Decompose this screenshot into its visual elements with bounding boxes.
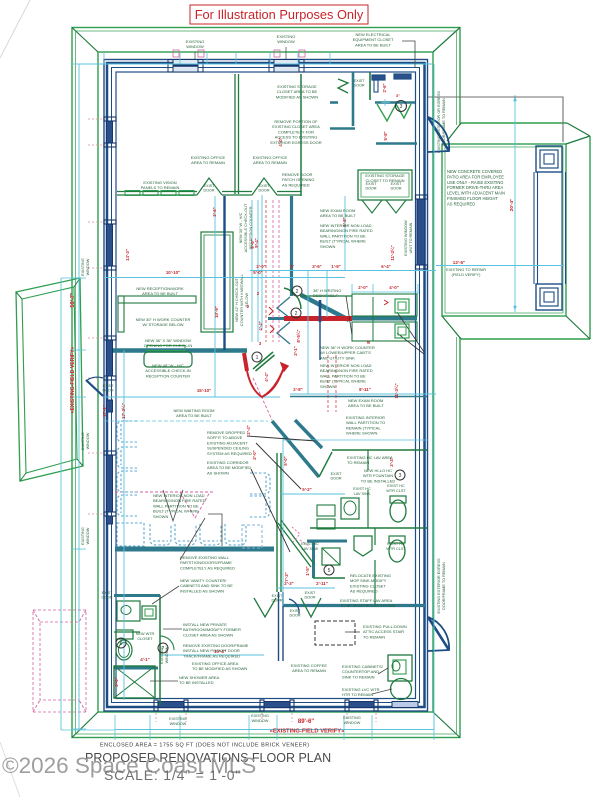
svg-text:5': 5'	[290, 264, 294, 269]
svg-text:2'-11": 2'-11"	[316, 581, 328, 586]
svg-text:LEVEL WITH ADJACENT MAIN: LEVEL WITH ADJACENT MAIN	[447, 191, 505, 196]
svg-text:7'-3": 7'-3"	[284, 572, 289, 581]
svg-text:5'-0": 5'-0"	[283, 456, 288, 465]
svg-text:7: 7	[162, 646, 165, 652]
svg-text:5'-0": 5'-0"	[253, 270, 262, 275]
svg-text:WINDOW: WINDOW	[86, 527, 90, 544]
svg-text:WINDOW: WINDOW	[86, 432, 90, 449]
svg-text:8': 8'	[366, 340, 371, 344]
svg-text:AS REQUIRED: AS REQUIRED	[350, 589, 378, 594]
svg-text:AREA TO BE BUILT: AREA TO BE BUILT	[320, 213, 356, 218]
svg-text:11'-3¼": 11'-3¼"	[394, 383, 399, 398]
svg-text:EXIST: EXIST	[305, 591, 316, 595]
svg-text:PATIO AREA FOR EMPLOYEE: PATIO AREA FOR EMPLOYEE	[447, 174, 504, 179]
svg-text:EXISTING: EXISTING	[81, 258, 85, 276]
svg-text:2'-0": 2'-0"	[358, 285, 367, 290]
svg-text:4'-4": 4'-4"	[258, 321, 263, 330]
svg-text:8'-11": 8'-11"	[359, 387, 371, 392]
svg-text:12'-5": 12'-5"	[453, 260, 465, 265]
svg-text:10'-9": 10'-9"	[214, 306, 219, 318]
svg-text:3'-6": 3'-6"	[312, 264, 321, 269]
svg-text:AS REQUIRED: AS REQUIRED	[447, 201, 475, 206]
svg-text:AREA TO REMAIN: AREA TO REMAIN	[253, 160, 287, 165]
svg-text:5: 5	[328, 568, 331, 574]
svg-text:WTR CLST: WTR CLST	[386, 547, 406, 551]
svg-text:WINDOW: WINDOW	[277, 39, 295, 44]
svg-text:WINDOW: WINDOW	[252, 719, 269, 723]
svg-text:11'-3¼": 11'-3¼"	[390, 245, 395, 260]
svg-text:3: 3	[400, 104, 403, 110]
svg-text:DOOR: DOOR	[101, 596, 112, 600]
svg-text:TO REMAIN: TO REMAIN	[363, 634, 385, 639]
svg-text:15'-10": 15'-10"	[197, 388, 211, 393]
svg-text:89'-6": 89'-6"	[298, 719, 314, 725]
svg-text:20'-4": 20'-4"	[509, 199, 514, 211]
svg-text:DOOR/FRAME TO REMAIN: DOOR/FRAME TO REMAIN	[442, 98, 446, 146]
svg-text:AND UTILITY SINK: AND UTILITY SINK	[320, 355, 355, 360]
svg-text:3'-0": 3'-0"	[256, 264, 265, 269]
svg-text:NEW CONCRETE COVERED: NEW CONCRETE COVERED	[447, 169, 502, 174]
svg-text:2'-6": 2'-6"	[382, 83, 387, 92]
svg-text:DESK/SHELF: DESK/SHELF	[313, 293, 338, 298]
svg-text:8'-5¼": 8'-5¼"	[296, 329, 301, 342]
svg-text:CLOSET: CLOSET	[137, 637, 153, 641]
svg-text:SCALE: 1/4" = 1'-0": SCALE: 1/4" = 1'-0"	[104, 767, 241, 783]
svg-text:3: 3	[399, 473, 402, 479]
svg-text:DOOR: DOOR	[102, 389, 113, 393]
svg-text:FORMER DRIVE-THRU AREA: FORMER DRIVE-THRU AREA	[447, 185, 503, 190]
svg-text:«EXISTING-FIELD VERIFY»: «EXISTING-FIELD VERIFY»	[70, 346, 76, 413]
svg-text:DOOR: DOOR	[353, 84, 364, 88]
svg-text:«EXISTING-FIELD VERIFY»: «EXISTING-FIELD VERIFY»	[270, 729, 345, 735]
svg-text:5'-8": 5'-8"	[383, 131, 388, 140]
svg-text:EXIST: EXIST	[331, 472, 342, 476]
svg-text:1: 1	[256, 355, 259, 361]
svg-text:CLOSET AREA AS SHOWN: CLOSET AREA AS SHOWN	[183, 632, 233, 637]
svg-text:EXIST: EXIST	[391, 182, 402, 186]
svg-text:EXTERIOR EGRESS DOOR: EXTERIOR EGRESS DOOR	[270, 140, 321, 145]
svg-text:EXIST HC: EXIST HC	[387, 484, 405, 488]
svg-text:MODIFIED AS SHOWN: MODIFIED AS SHOWN	[276, 94, 318, 99]
svg-text:1'-5": 1'-5"	[305, 566, 310, 575]
svg-text:SINK TO REMAIN: SINK TO REMAIN	[342, 674, 375, 679]
svg-text:6'-4": 6'-4"	[381, 264, 390, 269]
svg-text:EXIST: EXIST	[272, 594, 283, 598]
svg-text:WHERE SHOWN: WHERE SHOWN	[346, 431, 377, 436]
svg-text:AS REQUIRED: AS REQUIRED	[282, 182, 310, 187]
svg-text:PANELS TO REMAIN: PANELS TO REMAIN	[141, 185, 180, 190]
svg-text:EXIST: EXIST	[366, 182, 377, 186]
svg-text:3'-0": 3'-0"	[114, 677, 119, 686]
svg-text:EXIST: EXIST	[103, 384, 114, 388]
svg-text:EXISTING: EXISTING	[169, 717, 187, 721]
svg-text:TO BE MODIFIED AS SHOWN: TO BE MODIFIED AS SHOWN	[340, 603, 395, 608]
svg-text:WINDOW: WINDOW	[170, 722, 187, 726]
svg-text:UNIT TO REMAIN: UNIT TO REMAIN	[409, 222, 413, 253]
svg-text:DOOR: DOOR	[203, 189, 214, 193]
svg-text:HTR TO REMAIN: HTR TO REMAIN	[342, 692, 374, 697]
svg-text:EXISTING: EXISTING	[81, 527, 85, 545]
svg-text:TO BE INSTALLED: TO BE INSTALLED	[179, 680, 214, 685]
svg-text:AREA TO BE BUILT: AREA TO BE BUILT	[355, 42, 391, 47]
svg-text:WTR CLST: WTR CLST	[386, 489, 406, 493]
svg-text:AREA TO BE BUILT: AREA TO BE BUILT	[176, 413, 212, 418]
svg-text:3'-1": 3'-1"	[293, 346, 298, 355]
svg-text:SHOWN: SHOWN	[320, 384, 335, 389]
svg-text:4'-4": 4'-4"	[264, 372, 269, 381]
svg-text:EXIST: EXIST	[354, 79, 365, 83]
svg-text:AREA TO REMAIN: AREA TO REMAIN	[191, 160, 225, 165]
svg-text:AREA TO BE BUILT: AREA TO BE BUILT	[348, 403, 384, 408]
svg-text:COMPLETELY AS REQUIRED: COMPLETELY AS REQUIRED	[180, 565, 235, 570]
svg-text:EXIST: EXIST	[204, 184, 215, 188]
svg-text:TO BE INSTALLED: TO BE INSTALLED	[361, 478, 396, 483]
svg-text:EXIST HC: EXIST HC	[387, 542, 405, 546]
svg-text:WINDOW: WINDOW	[344, 721, 361, 725]
svg-text:TO BE MODIFIED AS SHOWN: TO BE MODIFIED AS SHOWN	[192, 666, 247, 671]
svg-text:DOOR: DOOR	[365, 187, 376, 191]
svg-text:RECEPTION COUNTER: RECEPTION COUNTER	[248, 206, 253, 249]
svg-text:WINDOW: WINDOW	[86, 258, 90, 275]
svg-text:EXIST: EXIST	[102, 591, 113, 595]
svg-text:AS SHOWN: AS SHOWN	[207, 470, 229, 475]
svg-text:AREA TO BE BUILT: AREA TO BE BUILT	[142, 291, 178, 296]
svg-text:DOOR: DOOR	[289, 614, 300, 618]
svg-text:2: 2	[295, 311, 298, 317]
svg-text:INSTALLED AS SHOWN: INSTALLED AS SHOWN	[180, 588, 224, 593]
svg-text:DOOR: DOOR	[330, 477, 341, 481]
svg-text:WINDOW: WINDOW	[186, 44, 204, 49]
svg-text:5'-2": 5'-2"	[302, 487, 311, 492]
svg-text:EXISTING WINDOW: EXISTING WINDOW	[404, 220, 408, 256]
svg-text:EXISTING: EXISTING	[251, 714, 269, 718]
svg-text:NEW WTR: NEW WTR	[136, 632, 155, 636]
svg-text:EXIST: EXIST	[259, 184, 270, 188]
svg-text:DOOR: DOOR	[390, 187, 401, 191]
svg-text:DOOR: DOOR	[258, 189, 269, 193]
svg-text:2'-8": 2'-8"	[293, 387, 302, 392]
svg-text:DOOR: DOOR	[304, 596, 315, 600]
svg-text:EXIST HC: EXIST HC	[301, 542, 319, 546]
svg-text:EXISTING EXTERIOR EGRESS: EXISTING EXTERIOR EGRESS	[437, 558, 441, 614]
svg-text:For Illustration Purposes Only: For Illustration Purposes Only	[195, 7, 364, 22]
svg-text:LAV SINK: LAV SINK	[302, 547, 319, 551]
svg-text:3'-6": 3'-6"	[212, 207, 217, 216]
svg-text:OPENING FOR CHECK-IN: OPENING FOR CHECK-IN	[144, 343, 193, 348]
svg-text:EXIST HC: EXIST HC	[353, 487, 371, 491]
svg-text:W/ STORAGE BELOW: W/ STORAGE BELOW	[142, 322, 183, 327]
svg-text:3": 3"	[396, 94, 400, 98]
svg-text:17'-1": 17'-1"	[102, 405, 107, 417]
svg-text:ENCLOSED AREA = 1755 SQ FT (DO: ENCLOSED AREA = 1755 SQ FT (DOES NOT INC…	[100, 743, 310, 749]
svg-text:SHOWN: SHOWN	[153, 514, 168, 519]
svg-text:1'-9": 1'-9"	[331, 264, 340, 269]
svg-text:TRACK/FRAME AS REQUIRED: TRACK/FRAME AS REQUIRED	[183, 653, 240, 658]
svg-text:FINISHED FLOOR HEIGHT: FINISHED FLOOR HEIGHT	[447, 196, 498, 201]
svg-text:4'-1": 4'-1"	[140, 657, 149, 662]
svg-text:2'-4": 2'-4"	[246, 425, 251, 434]
svg-text:4'-0": 4'-0"	[389, 285, 398, 290]
svg-text:2'-0": 2'-0"	[252, 450, 257, 459]
svg-text:6: 6	[120, 641, 123, 647]
svg-text:DOOR/FRAME TO REMAIN: DOOR/FRAME TO REMAIN	[442, 562, 446, 610]
svg-text:59'-7": 59'-7"	[70, 292, 76, 307]
svg-text:RECEPTION COUNTER: RECEPTION COUNTER	[146, 373, 190, 378]
svg-text:(FIELD VERIFY): (FIELD VERIFY)	[452, 272, 481, 277]
svg-text:EXISTING: EXISTING	[81, 432, 85, 450]
svg-text:EXISTING EXTERIOR OR EGRESS: EXISTING EXTERIOR OR EGRESS	[437, 91, 441, 153]
svg-text:2: 2	[296, 289, 299, 295]
svg-text:14'-3": 14'-3"	[125, 249, 130, 261]
svg-text:USE ONLY - RAISE EXISTING: USE ONLY - RAISE EXISTING	[447, 180, 504, 185]
svg-text:EXIST: EXIST	[290, 609, 301, 613]
svg-text:10'-10": 10'-10"	[166, 270, 180, 275]
svg-text:SHOWN: SHOWN	[320, 244, 335, 249]
svg-text:TO REMAIN: TO REMAIN	[347, 460, 369, 465]
svg-text:BELOW: BELOW	[244, 293, 249, 307]
svg-text:DOOR: DOOR	[271, 599, 282, 603]
svg-text:SYSTEM AS REQUIRED: SYSTEM AS REQUIRED	[207, 451, 252, 456]
svg-text:EXISTING: EXISTING	[343, 716, 361, 720]
svg-text:17'-3¼": 17'-3¼"	[121, 403, 126, 419]
svg-text:AREA TO REMAIN: AREA TO REMAIN	[292, 668, 326, 673]
svg-text:LAV SINK: LAV SINK	[354, 492, 371, 496]
